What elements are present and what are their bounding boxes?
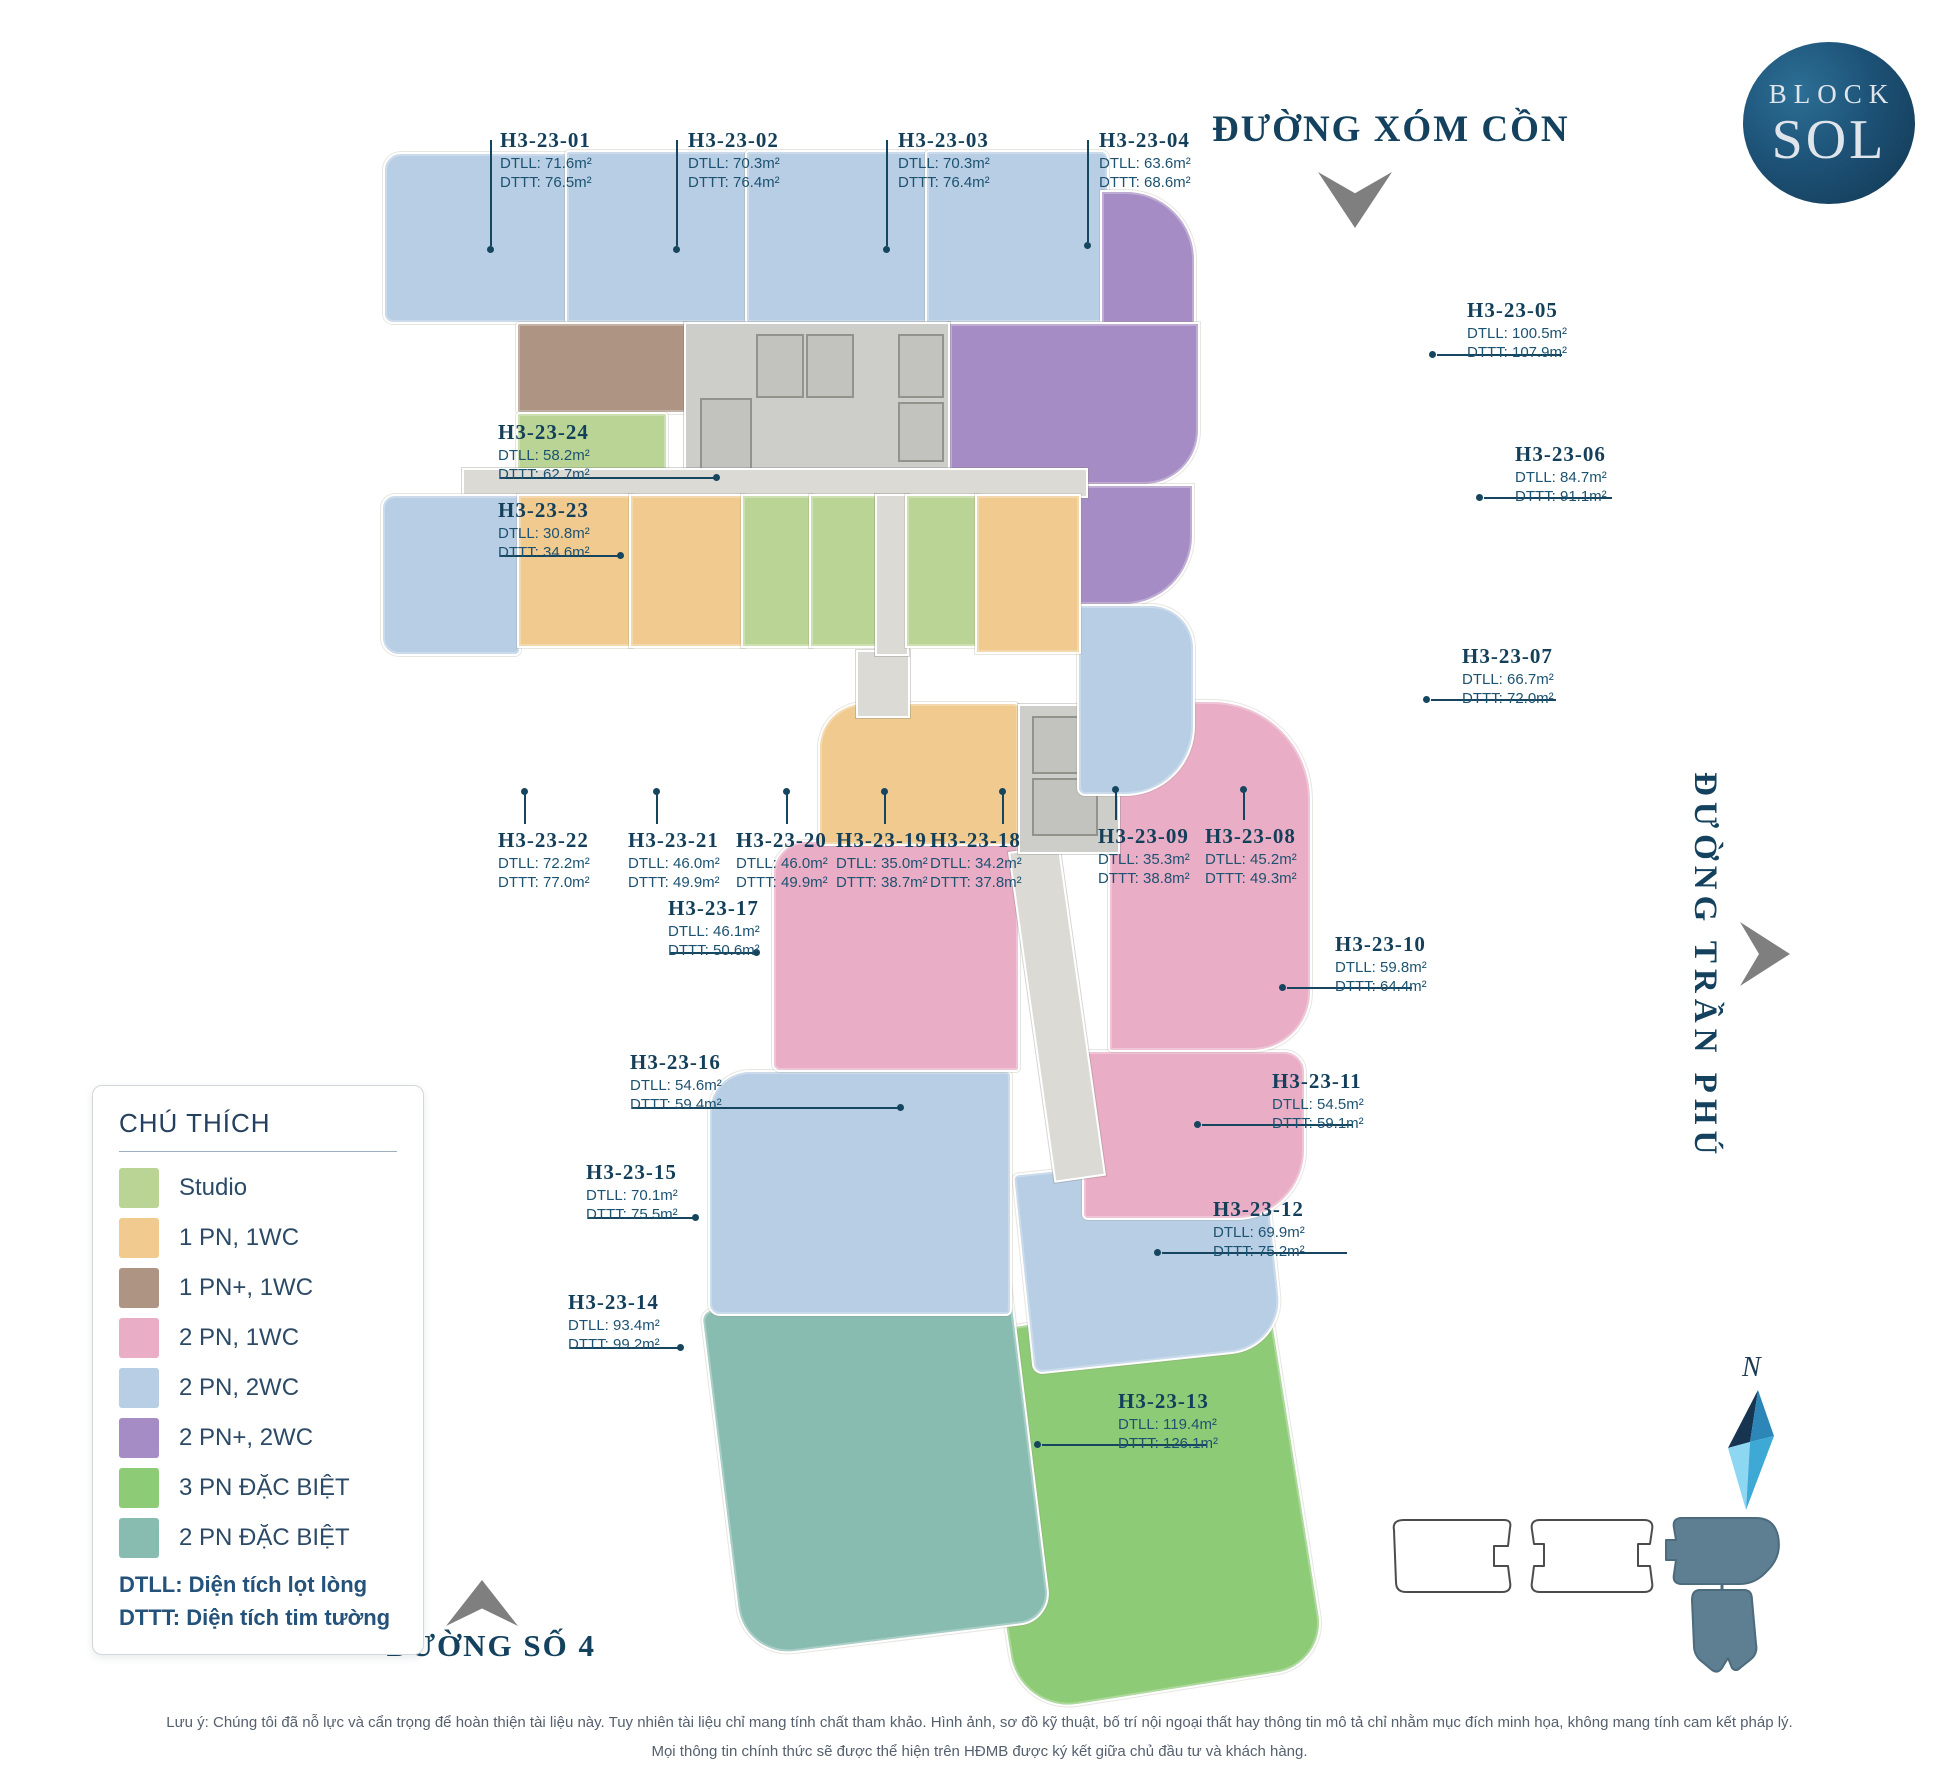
unit-label-H3-23-07: H3-23-07 DTLL: 66.7m² DTTT: 72.0m² (1462, 644, 1632, 707)
leader-dot (883, 246, 890, 253)
unit-dtll: DTLL: 69.9m² (1213, 1224, 1383, 1241)
leader-dot (1429, 351, 1436, 358)
leader-line (886, 140, 888, 246)
unit-id: H3-23-17 (668, 896, 838, 921)
unit-label-H3-23-23: H3-23-23 DTLL: 30.8m² DTTT: 34.6m² (498, 498, 668, 561)
unit-id: H3-23-07 (1462, 644, 1632, 669)
legend-swatch (119, 1318, 159, 1358)
disclaimer-line2: Mọi thông tin chính thức sẽ được thể hiệ… (0, 1737, 1959, 1766)
unit-label-H3-23-08: H3-23-08 DTLL: 45.2m² DTTT: 49.3m² (1205, 824, 1375, 887)
unit-id: H3-23-13 (1118, 1389, 1288, 1414)
unit-dtll: DTLL: 70.3m² (688, 155, 858, 172)
legend-title: CHÚ THÍCH (119, 1108, 397, 1139)
corridor-vertical (875, 494, 909, 656)
unit-dtll: DTLL: 45.2m² (1205, 851, 1375, 868)
leader-dot (1279, 984, 1286, 991)
unit-dtll: DTLL: 30.8m² (498, 525, 668, 542)
unit-id: H3-23-10 (1335, 932, 1505, 957)
legend-item-2pn-1wc: 2 PN, 1WC (119, 1318, 397, 1358)
leader-dot (897, 1104, 904, 1111)
legend-label: Studio (179, 1174, 247, 1202)
unit-dttt: DTTT: 76.4m² (898, 174, 1068, 191)
legend-note-dttt: DTTT: Diện tích tim tường (119, 1603, 397, 1634)
disclaimer-line1: Lưu ý: Chúng tôi đã nỗ lực và cẩn trọng … (0, 1708, 1959, 1737)
unit-id: H3-23-02 (688, 128, 858, 153)
elevator-shaft (898, 334, 944, 398)
legend-swatch (119, 1168, 159, 1208)
unit-label-H3-23-05: H3-23-05 DTLL: 100.5m² DTTT: 107.9m² (1467, 298, 1637, 361)
building-outline-1 (1394, 1520, 1511, 1592)
leader-line (1115, 792, 1117, 820)
legend-item-2pn-dacbiet: 2 PN ĐẶC BIỆT (119, 1518, 397, 1558)
leader-line (1243, 792, 1245, 820)
unit-label-H3-23-10: H3-23-10 DTLL: 59.8m² DTTT: 64.4m² (1335, 932, 1505, 995)
legend-item-studio: Studio (119, 1168, 397, 1208)
legend-label: 2 PN, 2WC (179, 1374, 299, 1402)
unit-dttt: DTTT: 72.0m² (1462, 690, 1632, 707)
unit-label-H3-23-06: H3-23-06 DTLL: 84.7m² DTTT: 91.1m² (1515, 442, 1685, 505)
unit-dtll: DTLL: 66.7m² (1462, 671, 1632, 688)
unit-dtll: DTLL: 34.2m² (930, 855, 1100, 872)
unit-region-H3-23-05b (948, 322, 1200, 486)
leader-dot (1084, 242, 1091, 249)
street-name-right: ĐƯỜNG TRẦN PHÚ (1686, 772, 1723, 1242)
unit-label-H3-23-11: H3-23-11 DTLL: 54.5m² DTTT: 59.1m² (1272, 1069, 1442, 1132)
legend-note-dtll: DTLL: Diện tích lọt lòng (119, 1570, 397, 1601)
unit-id: H3-23-24 (498, 420, 668, 445)
disclaimer: Lưu ý: Chúng tôi đã nỗ lực và cẩn trọng … (0, 1708, 1959, 1767)
unit-dttt: DTTT: 126.1m² (1118, 1435, 1288, 1452)
unit-label-H3-23-15: H3-23-15 DTLL: 70.1m² DTTT: 75.5m² (586, 1160, 756, 1223)
unit-id: H3-23-14 (568, 1290, 738, 1315)
legend-item-2pnplus-2wc: 2 PN+, 2WC (119, 1418, 397, 1458)
unit-region-H3-23-17 (818, 702, 1020, 846)
legend-label: 2 PN ĐẶC BIỆT (179, 1524, 350, 1552)
building-highlight-block-sol (1666, 1518, 1779, 1672)
unit-dtll: DTLL: 71.6m² (500, 155, 670, 172)
unit-label-H3-23-04: H3-23-04 DTLL: 63.6m² DTTT: 68.6m² (1099, 128, 1269, 191)
unit-dttt: DTTT: 62.7m² (498, 466, 668, 483)
unit-id: H3-23-03 (898, 128, 1068, 153)
block-sol-logo: BLOCK SOL (1743, 42, 1915, 204)
street-arrow-down-icon (1318, 172, 1392, 228)
legend-swatch (119, 1218, 159, 1258)
legend-swatch (119, 1418, 159, 1458)
unit-dttt: DTTT: 76.5m² (500, 174, 670, 191)
legend-swatch (119, 1368, 159, 1408)
unit-id: H3-23-16 (630, 1050, 800, 1075)
site-minimap (1390, 1496, 1810, 1686)
leader-line (524, 794, 526, 824)
unit-dttt: DTTT: 75.2m² (1213, 1243, 1383, 1260)
unit-dttt: DTTT: 49.3m² (1205, 870, 1375, 887)
leader-line (676, 140, 678, 246)
legend-label: 2 PN+, 2WC (179, 1424, 313, 1452)
unit-id: H3-23-01 (500, 128, 670, 153)
unit-dtll: DTLL: 63.6m² (1099, 155, 1269, 172)
elevator-shaft (756, 334, 804, 398)
legend-label: 1 PN+, 1WC (179, 1274, 313, 1302)
logo-line1: BLOCK (1769, 79, 1896, 110)
unit-dtll: DTLL: 119.4m² (1118, 1416, 1288, 1433)
unit-id: H3-23-12 (1213, 1197, 1383, 1222)
unit-region-H3-23-09 (905, 494, 979, 648)
unit-dtll: DTLL: 70.1m² (586, 1187, 756, 1204)
leader-dot (487, 246, 494, 253)
corridor-lower-spine (1008, 845, 1106, 1183)
unit-label-H3-23-24: H3-23-24 DTLL: 58.2m² DTTT: 62.7m² (498, 420, 668, 483)
unit-dttt: DTTT: 75.5m² (586, 1206, 756, 1223)
unit-dttt: DTTT: 37.8m² (930, 874, 1100, 891)
elevator-shaft (806, 334, 854, 398)
unit-label-H3-23-03: H3-23-03 DTLL: 70.3m² DTTT: 76.4m² (898, 128, 1068, 191)
unit-id: H3-23-18 (930, 828, 1100, 853)
unit-id: H3-23-08 (1205, 824, 1375, 849)
legend-label: 1 PN, 1WC (179, 1224, 299, 1252)
leader-dot (673, 246, 680, 253)
unit-id: H3-23-23 (498, 498, 668, 523)
unit-dtll: DTLL: 54.6m² (630, 1077, 800, 1094)
unit-label-H3-23-16: H3-23-16 DTLL: 54.6m² DTTT: 59.4m² (630, 1050, 800, 1113)
unit-region-H3-23-07 (1077, 604, 1195, 796)
corridor-connector (856, 650, 910, 718)
legend-swatch (119, 1468, 159, 1508)
unit-dtll: DTLL: 93.4m² (568, 1317, 738, 1334)
unit-region-H3-23-18 (809, 494, 879, 648)
unit-dttt: DTTT: 64.4m² (1335, 978, 1505, 995)
legend-item-1pnplus-1wc: 1 PN+, 1WC (119, 1268, 397, 1308)
stairwell (700, 398, 752, 476)
unit-label-H3-23-18: H3-23-18 DTLL: 34.2m² DTTT: 37.8m² (930, 828, 1100, 891)
leader-dot (1476, 494, 1483, 501)
elevator-shaft (898, 402, 944, 462)
unit-id: H3-23-04 (1099, 128, 1269, 153)
unit-dttt: DTTT: 59.4m² (630, 1096, 800, 1113)
legend-divider (119, 1151, 397, 1152)
unit-id: H3-23-05 (1467, 298, 1637, 323)
unit-dttt: DTTT: 50.6m² (668, 942, 838, 959)
legend-item-3pn-dacbiet: 3 PN ĐẶC BIỆT (119, 1468, 397, 1508)
leader-line (656, 794, 658, 824)
leader-line (490, 140, 492, 246)
unit-label-H3-23-01: H3-23-01 DTLL: 71.6m² DTTT: 76.5m² (500, 128, 670, 191)
building-outline-2 (1532, 1520, 1653, 1592)
unit-dtll: DTLL: 84.7m² (1515, 469, 1685, 486)
legend-label: 2 PN, 1WC (179, 1324, 299, 1352)
unit-label-H3-23-17: H3-23-17 DTLL: 46.1m² DTTT: 50.6m² (668, 896, 838, 959)
compass-north-label: N (1742, 1352, 1761, 1384)
unit-dttt: DTTT: 68.6m² (1099, 174, 1269, 191)
unit-label-H3-23-12: H3-23-12 DTLL: 69.9m² DTTT: 75.2m² (1213, 1197, 1383, 1260)
unit-label-H3-23-14: H3-23-14 DTLL: 93.4m² DTTT: 99.2m² (568, 1290, 738, 1353)
leader-line (1087, 140, 1089, 242)
leader-dot (1423, 696, 1430, 703)
unit-dttt: DTTT: 107.9m² (1467, 344, 1637, 361)
unit-region-H3-23-19 (741, 494, 813, 648)
unit-id: H3-23-11 (1272, 1069, 1442, 1094)
street-arrow-up-icon (446, 1580, 518, 1626)
leader-dot (1154, 1249, 1161, 1256)
logo-line2: SOL (1772, 112, 1887, 168)
unit-dttt: DTTT: 76.4m² (688, 174, 858, 191)
unit-dtll: DTLL: 54.5m² (1272, 1096, 1442, 1113)
unit-dttt: DTTT: 91.1m² (1515, 488, 1685, 505)
leader-line (1002, 794, 1004, 824)
legend-swatch (119, 1518, 159, 1558)
unit-region-H3-23-14 (700, 1272, 1053, 1659)
unit-region-H3-23-24 (516, 322, 688, 414)
unit-label-H3-23-02: H3-23-02 DTLL: 70.3m² DTTT: 76.4m² (688, 128, 858, 191)
unit-dttt: DTTT: 99.2m² (568, 1336, 738, 1353)
unit-dtll: DTLL: 58.2m² (498, 447, 668, 464)
unit-dtll: DTLL: 100.5m² (1467, 325, 1637, 342)
leader-line (884, 794, 886, 824)
unit-dttt: DTTT: 34.6m² (498, 544, 668, 561)
legend-panel: CHÚ THÍCH Studio 1 PN, 1WC 1 PN+, 1WC 2 … (92, 1085, 424, 1655)
unit-id: H3-23-15 (586, 1160, 756, 1185)
unit-dtll: DTLL: 46.1m² (668, 923, 838, 940)
legend-swatch (119, 1268, 159, 1308)
unit-id: H3-23-06 (1515, 442, 1685, 467)
unit-dtll: DTLL: 70.3m² (898, 155, 1068, 172)
legend-item-2pn-2wc: 2 PN, 2WC (119, 1368, 397, 1408)
leader-line (786, 794, 788, 824)
unit-region-H3-23-05 (1100, 190, 1196, 332)
unit-dtll: DTLL: 59.8m² (1335, 959, 1505, 976)
legend-item-1pn-1wc: 1 PN, 1WC (119, 1218, 397, 1258)
leader-dot (1194, 1121, 1201, 1128)
unit-label-H3-23-13: H3-23-13 DTLL: 119.4m² DTTT: 126.1m² (1118, 1389, 1288, 1452)
unit-dttt: DTTT: 59.1m² (1272, 1115, 1442, 1132)
floorplan-page: BLOCK SOL ĐƯỜNG XÓM CỒN ĐƯỜNG TRẦN PHÚ Đ… (0, 0, 1959, 1787)
street-arrow-right-icon (1740, 922, 1790, 986)
legend-label: 3 PN ĐẶC BIỆT (179, 1474, 350, 1502)
leader-dot (713, 474, 720, 481)
unit-region-H3-23-08 (975, 494, 1081, 654)
leader-dot (1034, 1441, 1041, 1448)
